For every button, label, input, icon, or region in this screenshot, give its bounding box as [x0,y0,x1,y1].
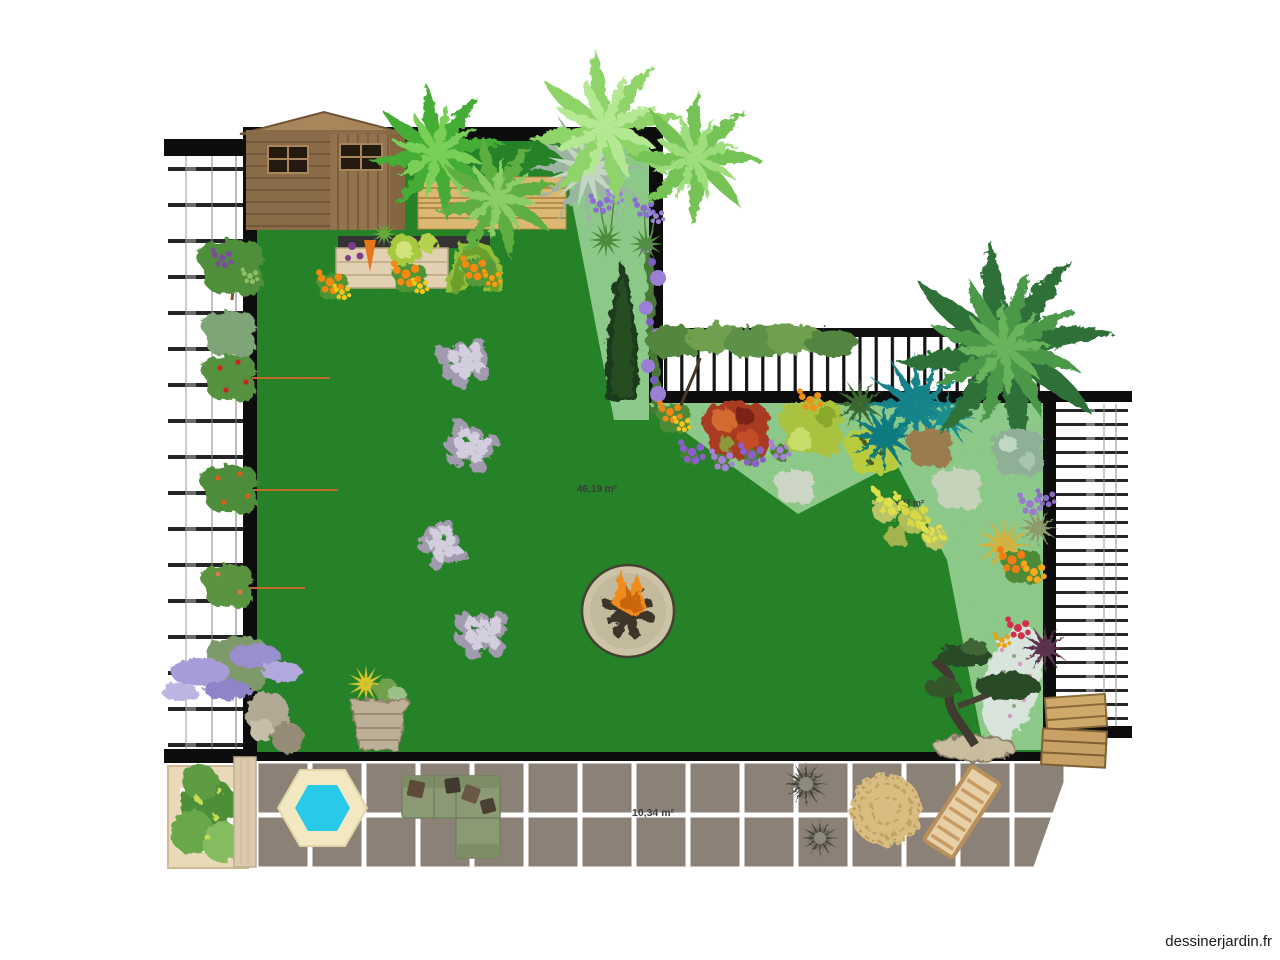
pale-shrub-2[interactable] [933,468,981,511]
shed-door-window [340,144,382,170]
silver-hosta[interactable] [990,429,1043,477]
wood-beam[interactable] [234,757,256,867]
wicker-pouf[interactable] [850,774,922,846]
shed-window [268,146,308,173]
fire-pit[interactable] [582,565,674,657]
wooden-crates[interactable] [1041,694,1107,768]
espalier-tree-2[interactable] [202,310,255,358]
garden-plan-canvas: 46,19 m² 4,97 m² 10,34 m² [0,0,1280,960]
area-label-terrace: 10,34 m² [632,807,675,819]
pale-shrub-1[interactable] [775,469,814,504]
right-trellis-fence[interactable] [1054,391,1132,738]
area-label-lawn: 46,19 m² [577,484,618,495]
brown-grass[interactable] [907,428,952,468]
garden-shed[interactable] [240,112,408,230]
watermark: dessinerjardin.fr [1165,933,1272,950]
